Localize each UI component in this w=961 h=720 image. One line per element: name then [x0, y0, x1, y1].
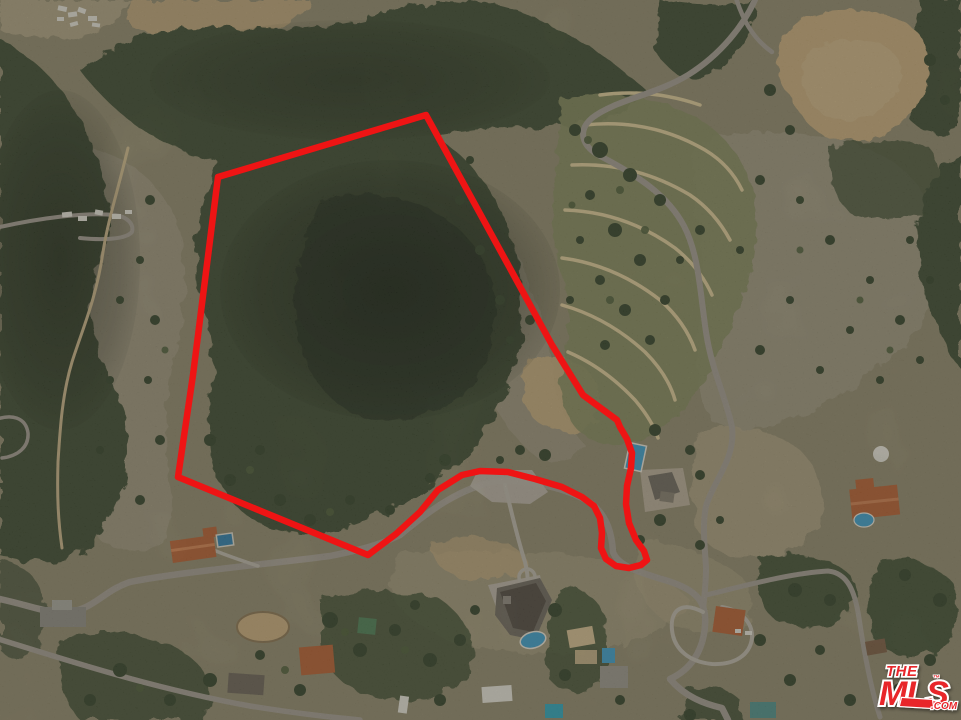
aerial-photo: THE ™ MLS .COM — [0, 0, 961, 720]
light-speckle-overlay — [0, 0, 961, 720]
mls-logo-com: .COM — [931, 701, 958, 712]
aerial-photo-stage: THE ™ MLS .COM — [0, 0, 961, 720]
mls-logo-underbar — [900, 698, 933, 708]
